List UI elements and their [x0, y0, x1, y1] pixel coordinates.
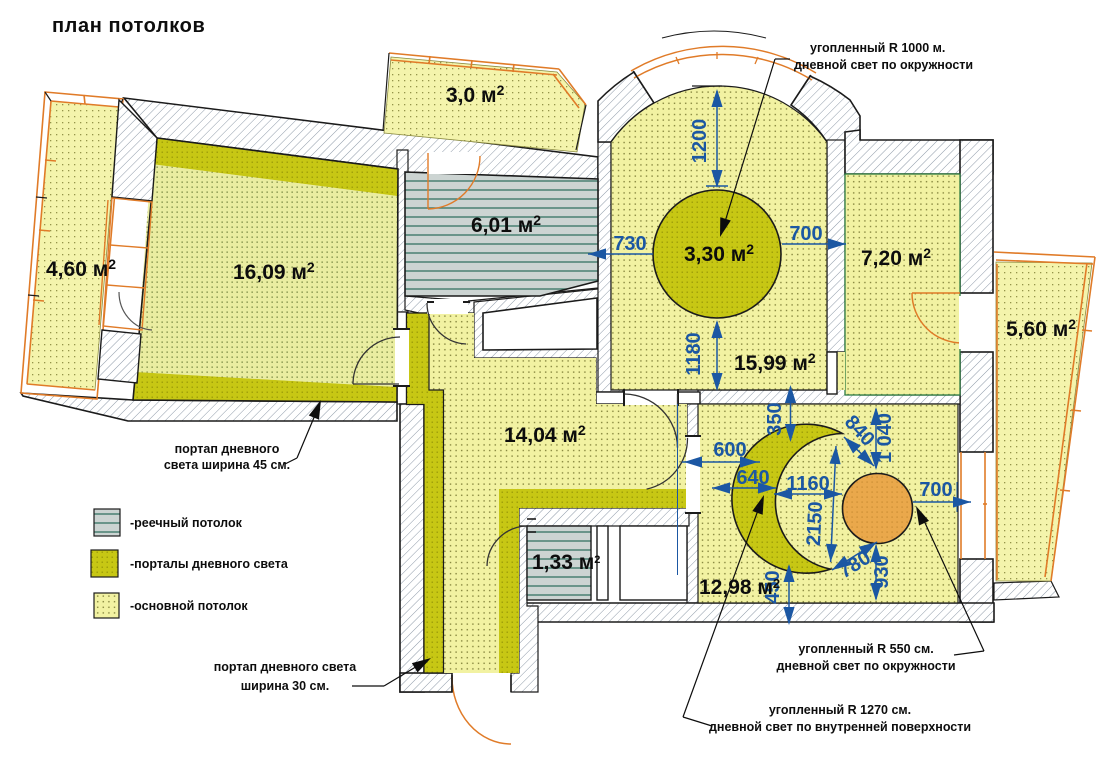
- svg-text:угопленный R 1000 м.: угопленный R 1000 м.: [810, 41, 945, 55]
- svg-text:350: 350: [764, 402, 786, 435]
- svg-text:3,30 м2: 3,30 м2: [684, 241, 754, 266]
- svg-text:730: 730: [613, 233, 646, 255]
- svg-text:портап дневного: портап дневного: [175, 442, 280, 456]
- svg-text:1180: 1180: [683, 332, 705, 375]
- svg-text:-основной потолок: -основной потолок: [130, 599, 248, 613]
- svg-text:7,20 м2: 7,20 м2: [861, 245, 931, 270]
- svg-text:3,0 м2: 3,0 м2: [446, 82, 505, 107]
- svg-text:портап дневного света: портап дневного света: [214, 660, 358, 674]
- svg-text:1 040: 1 040: [874, 413, 896, 463]
- svg-text:930: 930: [871, 555, 893, 588]
- svg-text:14,04 м2: 14,04 м2: [504, 422, 586, 447]
- svg-text:ширина 30 см.: ширина 30 см.: [241, 679, 329, 693]
- svg-text:12,98 м2: 12,98 м2: [699, 576, 780, 599]
- svg-text:2150: 2150: [803, 501, 827, 547]
- svg-text:план потолков: план потолков: [52, 15, 205, 37]
- svg-text:6,01 м2: 6,01 м2: [471, 212, 541, 237]
- svg-text:света ширина 45 см.: света ширина 45 см.: [164, 458, 290, 472]
- svg-text:700: 700: [919, 479, 952, 501]
- svg-text:700: 700: [789, 223, 822, 245]
- svg-text:дневной свет по окружности: дневной свет по окружности: [776, 659, 955, 673]
- svg-text:15,99 м2: 15,99 м2: [734, 350, 816, 375]
- svg-text:-порталы дневного света: -порталы дневного света: [130, 557, 289, 571]
- svg-text:1200: 1200: [689, 119, 711, 164]
- svg-text:16,09 м2: 16,09 м2: [233, 259, 315, 284]
- svg-text:угопленный R 550 см.: угопленный R 550 см.: [798, 642, 933, 656]
- svg-text:дневной свет по внутренней пов: дневной свет по внутренней поверхности: [709, 720, 971, 734]
- svg-text:640: 640: [736, 467, 769, 489]
- svg-text:-реечный потолок: -реечный потолок: [130, 516, 243, 530]
- svg-text:5,60 м2: 5,60 м2: [1006, 316, 1076, 341]
- svg-text:4,60 м2: 4,60 м2: [46, 256, 116, 281]
- svg-text:1160: 1160: [786, 473, 829, 495]
- svg-text:1,33 м2: 1,33 м2: [532, 551, 600, 574]
- svg-text:600: 600: [713, 439, 746, 461]
- svg-text:угопленный R 1270 см.: угопленный R 1270 см.: [769, 703, 911, 717]
- svg-text:дневной свет по окружности: дневной свет по окружности: [794, 58, 973, 72]
